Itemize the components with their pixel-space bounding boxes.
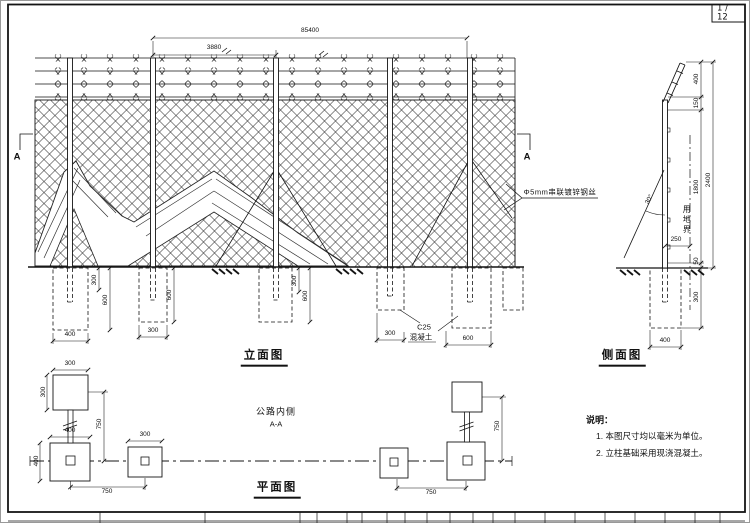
- dim-f2-width: 300: [148, 328, 159, 335]
- side-brace: [624, 170, 664, 258]
- dim-plan-anchor-width: 300: [65, 361, 76, 368]
- notes-heading: 说明：: [586, 416, 613, 425]
- side-foundation: [650, 268, 681, 328]
- dim-side-gap: 150: [694, 98, 701, 109]
- section-cut-label: A-A: [270, 420, 283, 428]
- dim-f3-shaft-depth: 300: [292, 276, 299, 287]
- section-marker-a-right: A: [524, 152, 531, 162]
- wire-callout-label: Φ5mm串联镀锌钢丝: [524, 188, 597, 196]
- dim-side-embed-depth: 300: [694, 292, 701, 303]
- dim-bay-spacing: 3880: [207, 45, 221, 52]
- dim-plan-mid-width: 300: [140, 432, 151, 439]
- dim-f1-width: 400: [65, 332, 76, 339]
- dim-side-arm: 400: [694, 74, 701, 85]
- dim-plan-stay-length: 750: [97, 419, 104, 430]
- side-view-title: 侧面图: [599, 350, 646, 367]
- dim-plan-footing-height: 400: [34, 456, 41, 467]
- plan-dimension-lines: [40, 370, 506, 491]
- page-number: 1 / 12: [717, 5, 739, 22]
- plan-footings: [50, 375, 485, 481]
- side-ground-hatch: [620, 270, 704, 275]
- plan-dimension-ticks: [38, 368, 504, 490]
- dim-overall-length: 85400: [301, 28, 319, 35]
- dim-f2-depth: 600: [167, 290, 174, 301]
- dim-plan-post-spacing: 750: [102, 489, 113, 496]
- land-boundary-label: 用地界: [682, 205, 691, 235]
- note-item-1: 1. 本图尺寸均以毫米为单位。: [596, 432, 707, 441]
- section-marker-a-left: A: [14, 152, 21, 162]
- plan-view-title: 平面图: [254, 482, 301, 499]
- foundations: [53, 268, 523, 330]
- dim-side-mesh-height: 1800: [694, 180, 701, 194]
- plan-break-marks: [63, 421, 474, 431]
- dim-side-clearance: 50: [694, 257, 701, 264]
- dim-f4-width: 600: [463, 336, 474, 343]
- road-inner-side-label: 公路内侧: [256, 407, 296, 418]
- dim-f3-depth: 600: [303, 291, 310, 302]
- dim-plan-stay-length-2: 750: [495, 421, 502, 432]
- dim-plan-anchor-height: 300: [41, 387, 48, 398]
- dim-side-offset: 250: [671, 237, 682, 244]
- note-item-2: 2. 立柱基础采用现浇混凝土。: [596, 449, 707, 458]
- dim-plan-footing-width: 400: [65, 428, 76, 435]
- elevation-view-title: 立面图: [241, 350, 288, 367]
- side-view: [616, 60, 716, 350]
- dim-f1-depth: 600: [103, 295, 110, 306]
- side-post: [663, 100, 668, 268]
- dim-plan-post-spacing-2: 750: [426, 490, 437, 497]
- dim-side-total-height: 2400: [706, 173, 713, 187]
- dim-side-footing-width: 400: [660, 338, 671, 345]
- dim-f5-width: 300: [385, 331, 396, 338]
- drawing-canvas: [0, 0, 750, 523]
- ground-hatch: [212, 269, 363, 274]
- drawing-sheet: 1 / 12 85400 3880 300 600 400 600 300 30…: [0, 0, 750, 523]
- concrete-material-label: 混凝土: [410, 333, 433, 341]
- dim-f1-shaft-depth: 300: [92, 275, 99, 286]
- concrete-grade-label: C25: [417, 323, 431, 331]
